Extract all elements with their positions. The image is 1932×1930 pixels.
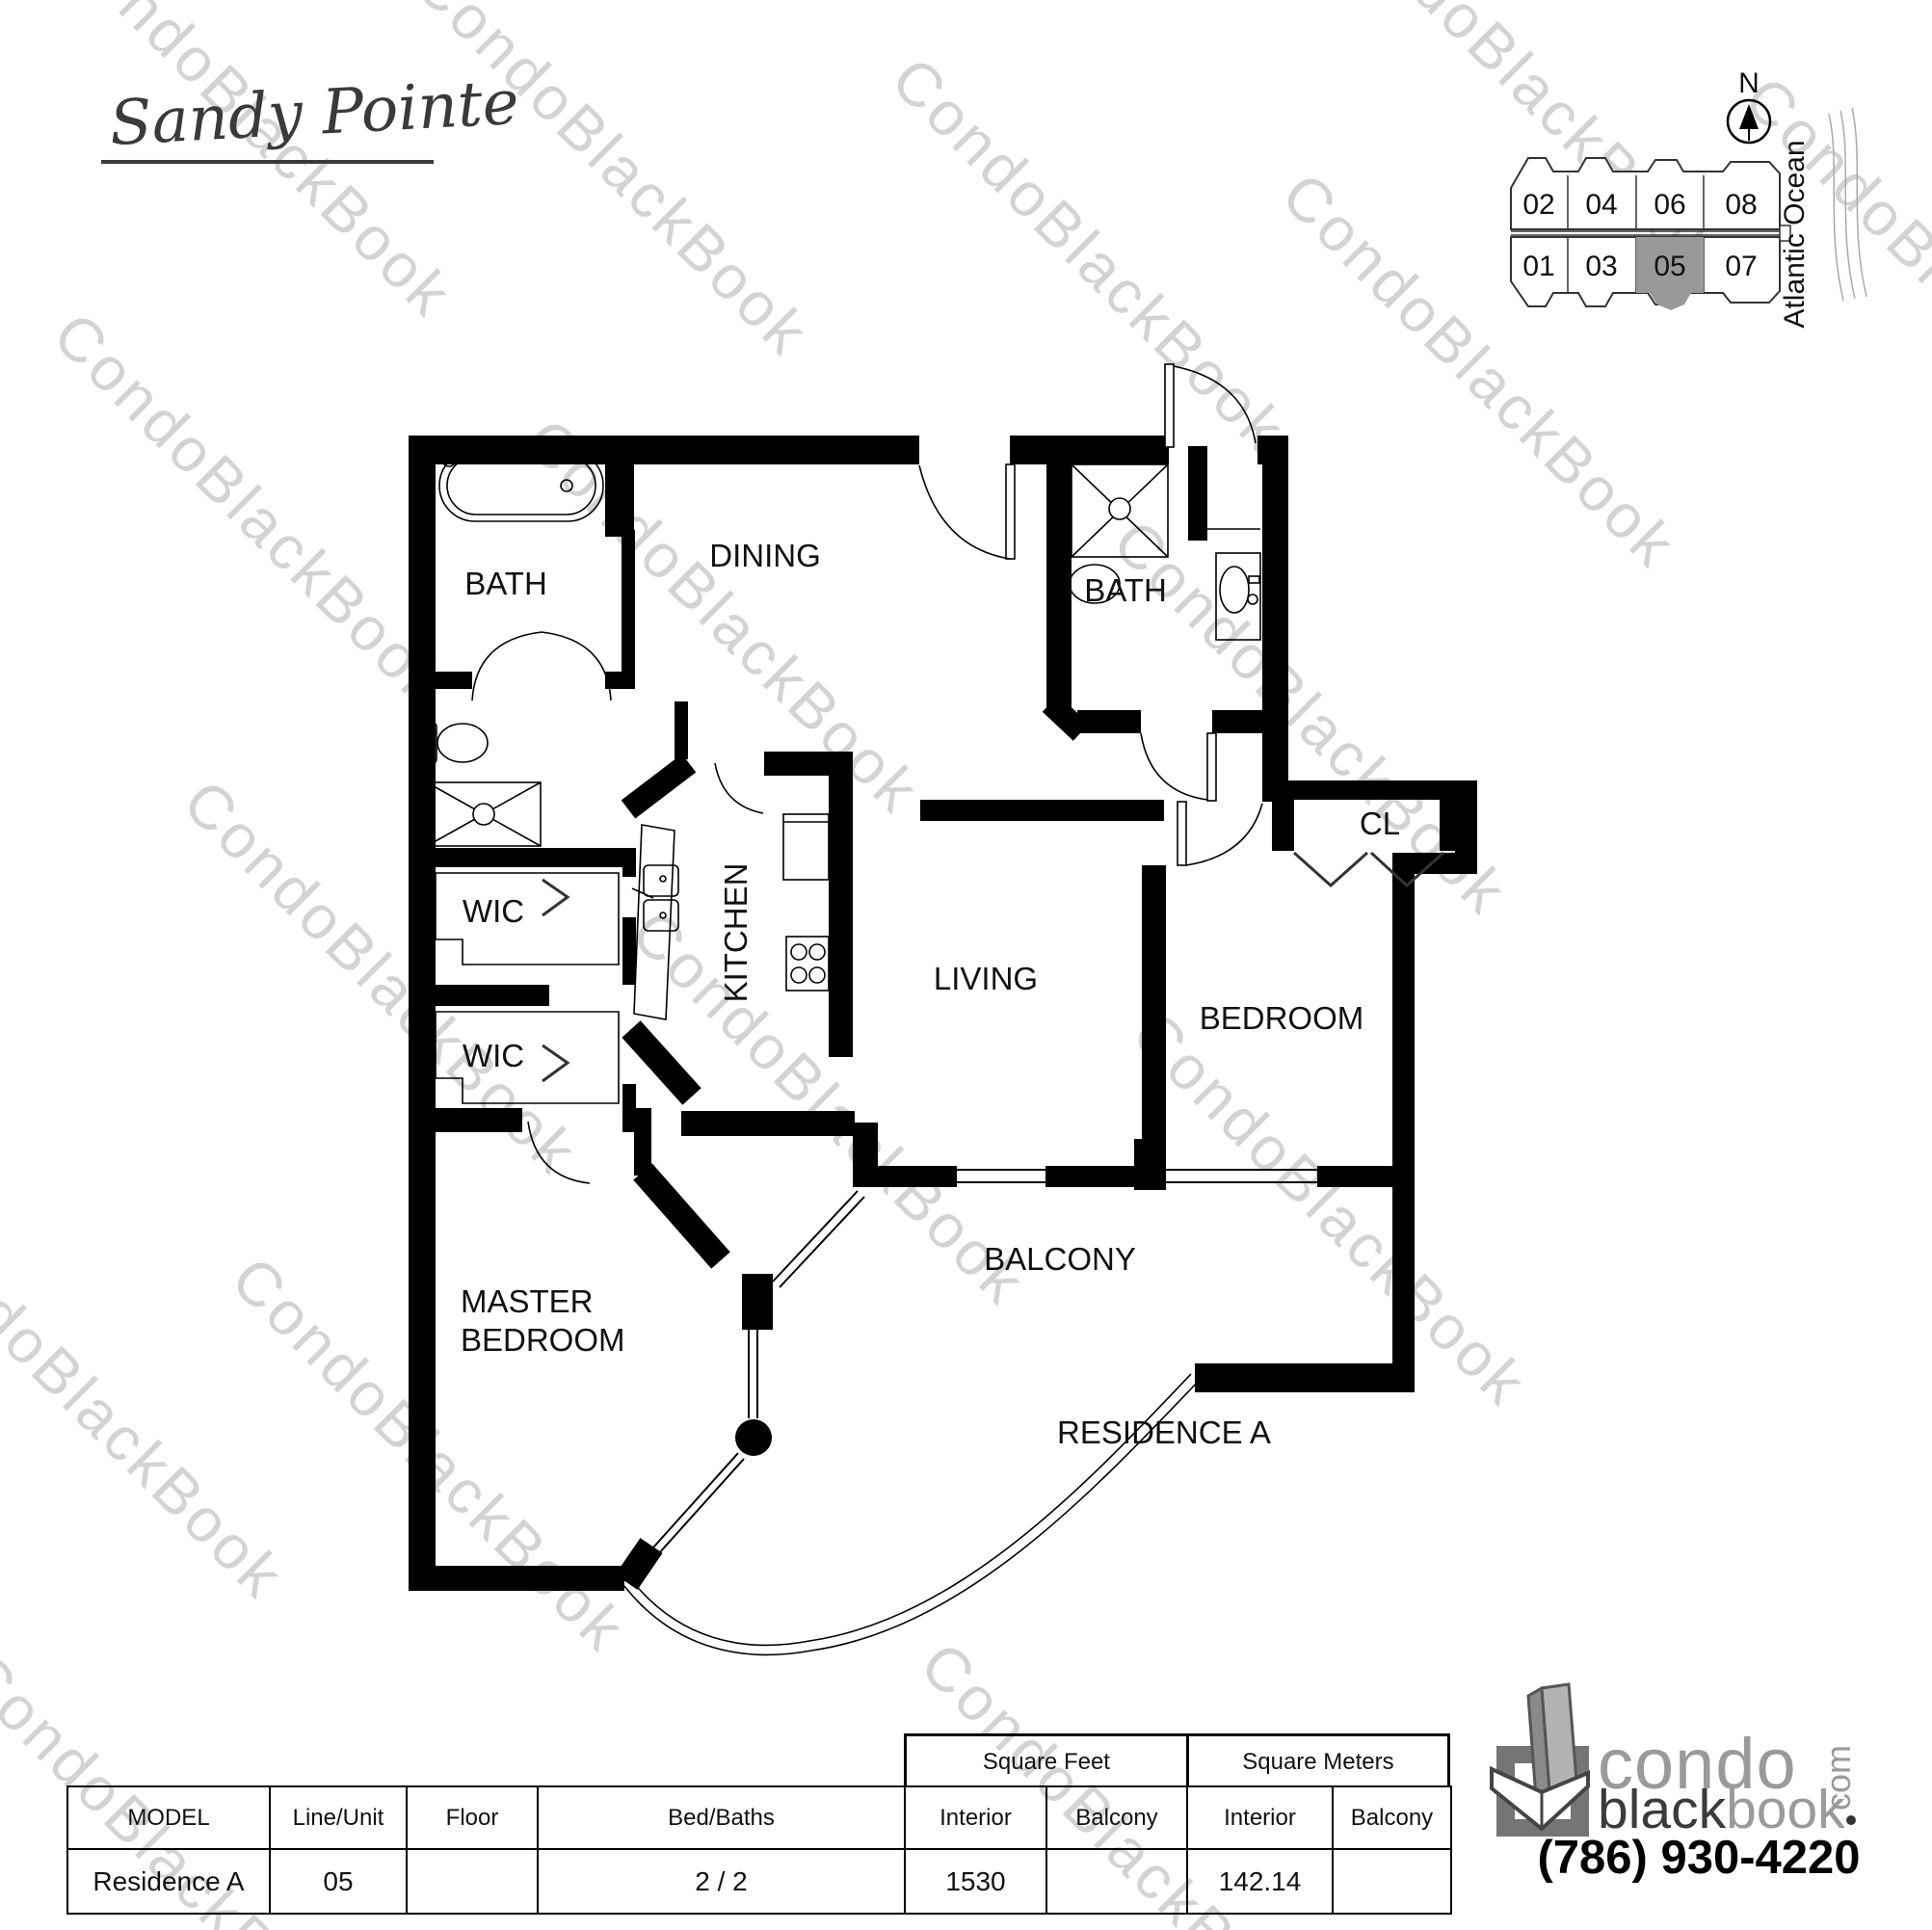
unit-spec-table: MODEL Line/Unit Floor Bed/Baths Interior… (66, 1785, 1452, 1915)
cell-bed-baths: 2 / 2 (538, 1849, 905, 1914)
col-bed-baths: Bed/Baths (538, 1786, 905, 1849)
table-header-row: MODEL Line/Unit Floor Bed/Baths Interior… (67, 1786, 1451, 1849)
label-bedroom: BEDROOM (1200, 1000, 1364, 1036)
logo-text-com: com (1818, 1772, 1859, 1811)
col-sm-interior: Interior (1187, 1786, 1333, 1849)
label-kitchen: KITCHEN (718, 863, 754, 1003)
square-feet-header: Square Feet (907, 1736, 1186, 1787)
watermark: CondoBlackBook (402, 0, 824, 369)
floorplan-sheet: CondoBlackBook CondoBlackBook CondoBlack… (0, 0, 1932, 1930)
cell-sm-interior: 142.14 (1187, 1849, 1333, 1914)
watermark: CondoBlackBook (40, 300, 463, 722)
floor-plan: BATH DINING BATH WIC WIC KITCHEN LIVING … (409, 364, 1477, 1654)
cell-sf-balcony (1046, 1849, 1187, 1914)
table-data-row: Residence A 05 2 / 2 1530 142.14 (67, 1849, 1451, 1914)
watermark: CondoBlackBook (1120, 998, 1542, 1420)
unit-entry-door (1165, 364, 1174, 447)
col-sf-interior: Interior (905, 1786, 1046, 1849)
cell-line-unit: 05 (270, 1849, 407, 1914)
keyplan-unit-08: 08 (1725, 189, 1757, 221)
label-wic-upper: WIC (463, 893, 524, 929)
dining-entry-door (1006, 464, 1015, 559)
label-bath-left: BATH (464, 566, 547, 601)
keyplan-unit-04: 04 (1585, 189, 1617, 221)
col-model: MODEL (67, 1786, 270, 1849)
keyplan-unit-03: 03 (1585, 251, 1617, 282)
keyplan-unit-05: 05 (1654, 251, 1685, 282)
label-residence: RESIDENCE A (1057, 1414, 1271, 1450)
watermark: CondoBlackBook (513, 406, 935, 828)
cell-model: Residence A (67, 1849, 270, 1914)
watermark: CondoBlackBook (879, 44, 1301, 466)
keyplan-unit-06: 06 (1654, 189, 1685, 221)
logo-com-dot (1846, 1815, 1856, 1825)
col-floor: Floor (407, 1786, 538, 1849)
label-balcony: BALCONY (984, 1241, 1136, 1277)
keyplan-unit-02: 02 (1522, 189, 1554, 221)
label-living: LIVING (934, 961, 1038, 996)
plan-svg: CondoBlackBook CondoBlackBook CondoBlack… (0, 0, 1932, 1930)
col-sf-balcony: Balcony (1046, 1786, 1187, 1849)
square-meters-header: Square Meters (1186, 1736, 1447, 1787)
cell-floor (407, 1849, 538, 1914)
watermark: CondoBlackBook (0, 1191, 298, 1613)
wic-upper-door-icon (543, 880, 568, 915)
brand-logo: Sandy Pointe (101, 67, 520, 162)
bath-left-door (472, 632, 542, 701)
ocean-label: Atlantic Ocean (1779, 140, 1811, 328)
cell-sf-interior: 1530 (905, 1849, 1046, 1914)
shower-left-icon (427, 782, 541, 846)
label-bath-right: BATH (1084, 572, 1167, 608)
label-dining: DINING (709, 538, 821, 573)
phone-number: (786) 930-4220 (1492, 1831, 1906, 1885)
bath-right-door (1207, 733, 1216, 801)
north-label: N (1738, 67, 1760, 99)
label-wic-lower: WIC (463, 1038, 524, 1073)
label-master-1: MASTER (461, 1283, 594, 1319)
label-closet: CL (1360, 806, 1400, 841)
kitchen-door (715, 763, 763, 813)
wic-lower-door-icon (543, 1045, 568, 1081)
label-master-2: BEDROOM (461, 1322, 625, 1358)
stove-icon (786, 937, 829, 991)
fridge-icon (783, 814, 829, 880)
logo-text-blackbook: blackbook (1598, 1783, 1845, 1837)
col-sm-balcony: Balcony (1333, 1786, 1451, 1849)
keyplan-unit-01: 01 (1522, 251, 1554, 282)
cell-sm-balcony (1333, 1849, 1451, 1914)
col-line-unit: Line/Unit (270, 1786, 407, 1849)
keyplan-unit-07: 07 (1725, 251, 1757, 282)
bedroom-door (1178, 802, 1186, 865)
area-units-header-table: Square Feet Square Meters (904, 1733, 1450, 1787)
condoblackbook-logo-icon (1492, 1684, 1589, 1837)
watermark: CondoBlackBook (45, 0, 467, 330)
